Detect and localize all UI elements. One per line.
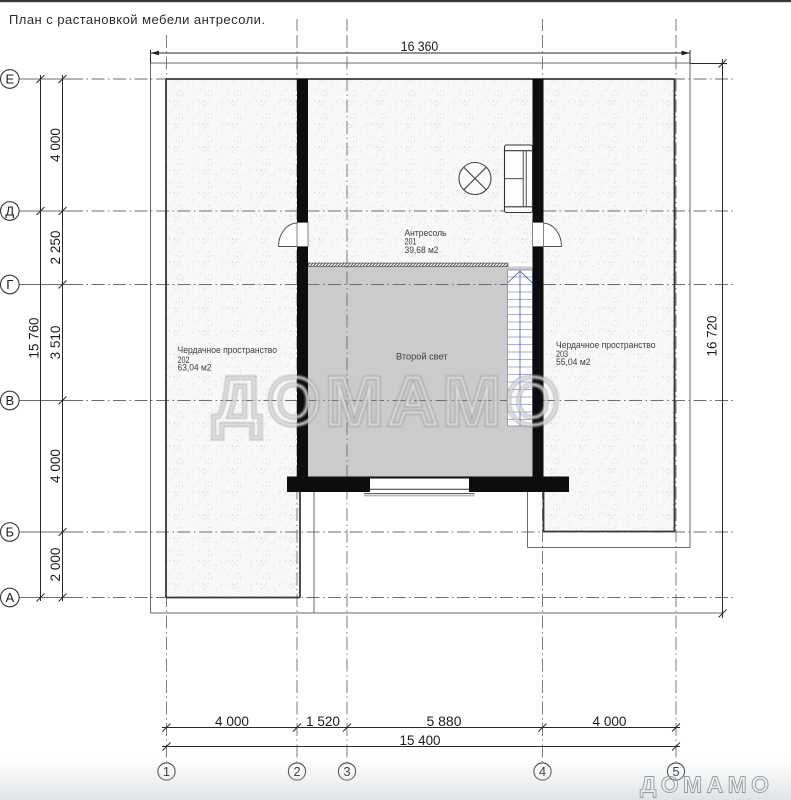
svg-text:Г: Г — [6, 277, 13, 292]
svg-text:4 000: 4 000 — [215, 713, 249, 729]
svg-text:ДОМАМО: ДОМАМО — [640, 772, 773, 798]
svg-text:5 880: 5 880 — [427, 713, 462, 729]
svg-text:15 400: 15 400 — [400, 732, 441, 748]
svg-text:16 360: 16 360 — [401, 38, 439, 54]
svg-text:2 000: 2 000 — [47, 547, 63, 581]
svg-text:39,68 м2: 39,68 м2 — [405, 245, 439, 255]
svg-text:Второй свет: Второй свет — [396, 351, 448, 361]
svg-text:4 000: 4 000 — [593, 713, 627, 729]
svg-text:63,04 м2: 63,04 м2 — [178, 362, 212, 372]
svg-text:1 520: 1 520 — [306, 713, 340, 729]
svg-text:16 720: 16 720 — [704, 315, 720, 356]
svg-text:Чердачное пространство: Чердачное пространство — [556, 340, 656, 350]
svg-text:Б: Б — [6, 525, 15, 540]
svg-text:Е: Е — [5, 72, 14, 87]
svg-text:4 000: 4 000 — [47, 128, 63, 162]
svg-text:В: В — [5, 393, 14, 408]
svg-text:3 510: 3 510 — [47, 325, 63, 359]
svg-text:15 760: 15 760 — [26, 317, 42, 358]
svg-text:2 250: 2 250 — [47, 230, 63, 264]
svg-text:4 000: 4 000 — [47, 449, 63, 483]
svg-text:Д: Д — [5, 204, 14, 219]
svg-text:План с растановкой мебели антр: План с растановкой мебели антресоли. — [9, 12, 265, 27]
svg-text:ДОМАМО: ДОМАМО — [213, 364, 569, 440]
svg-text:А: А — [5, 590, 14, 605]
svg-text:Чердачное пространство: Чердачное пространство — [178, 345, 278, 355]
